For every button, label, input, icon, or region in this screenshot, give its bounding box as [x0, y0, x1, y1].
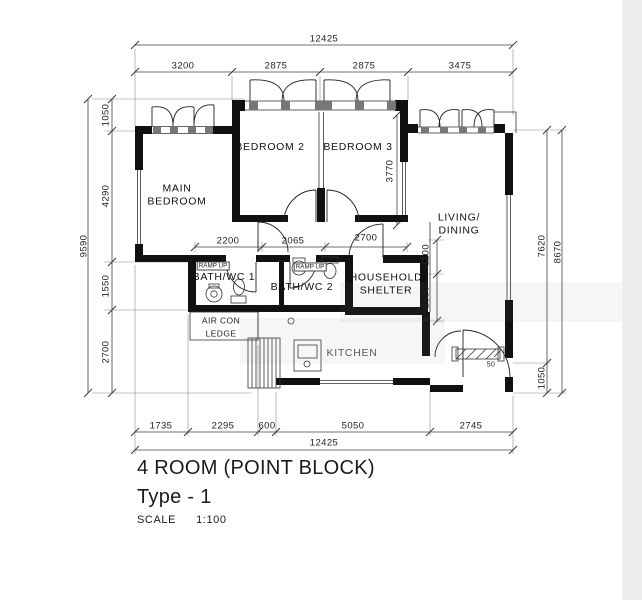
dim-bottom-segment: 600 [258, 421, 275, 432]
dim-right-outer: 8670 [553, 241, 564, 264]
room-label-kitchen: KITCHEN [327, 347, 378, 359]
dim-entrance-step: 50 [487, 362, 496, 369]
dim-bottom-segment: 5050 [342, 421, 365, 432]
dim-right-inner: 7620 [537, 235, 548, 258]
room-label-main-bedroom: MAIN BEDROOM [147, 183, 206, 208]
room-label-bedroom2: BEDROOM 2 [235, 141, 304, 153]
room-label-aircon-ledge: AIR CON LEDGE [202, 315, 240, 340]
floorplan-page: 12425 3200 2875 2875 3475 9590 1050 4290… [0, 0, 642, 600]
dim-top-segment: 2875 [353, 61, 376, 72]
scale-label: SCALE [137, 514, 176, 526]
dim-hall-segment: 2700 [355, 233, 378, 244]
dim-left-segment: 1050 [101, 104, 112, 127]
plan-title: 4 ROOM (POINT BLOCK) [137, 457, 375, 480]
dim-left-segment: 1550 [101, 275, 112, 298]
dim-left-segment: 4290 [101, 185, 112, 208]
dim-top-segment: 2875 [265, 61, 288, 72]
dim-top-total: 12425 [310, 34, 338, 45]
room-label-bath1: BATH/WC 1 [193, 271, 256, 283]
plan-type: Type - 1 [137, 486, 212, 509]
room-label-bath2: BATH/WC 2 [271, 281, 334, 293]
dim-bottom-total: 12425 [310, 438, 338, 449]
scale-value: 1:100 [196, 514, 227, 526]
dim-hall-segment: 2065 [282, 236, 305, 247]
room-label-bedroom3: BEDROOM 3 [323, 141, 392, 153]
dim-bottom-segment: 1735 [150, 421, 173, 432]
dim-left-total: 9590 [79, 235, 90, 258]
dim-right-bottom: 1050 [537, 367, 548, 390]
dim-left-segment: 2700 [101, 341, 112, 364]
dim-bottom-segment: 2295 [212, 421, 235, 432]
page-edge [622, 0, 642, 600]
dim-shelter-side: 1100 [421, 244, 432, 266]
dim-hall-segment: 2200 [217, 236, 240, 247]
window-posts [153, 101, 486, 134]
plan-scale: SCALE1:100 [137, 514, 227, 526]
ramp-up-label: RAMP UP [197, 262, 230, 271]
dim-bedroom3-depth: 3770 [385, 160, 396, 183]
dim-top-segment: 3475 [449, 61, 472, 72]
ramp-up-label: RAMP UP [294, 263, 327, 272]
dim-top-segment: 3200 [172, 61, 195, 72]
room-label-living-dining: LIVING/ DINING [438, 212, 480, 237]
dim-bottom-segment: 2745 [460, 421, 483, 432]
floorplan-drawing [0, 0, 642, 600]
room-label-household-shelter: HOUSEHOLD SHELTER [350, 272, 423, 297]
